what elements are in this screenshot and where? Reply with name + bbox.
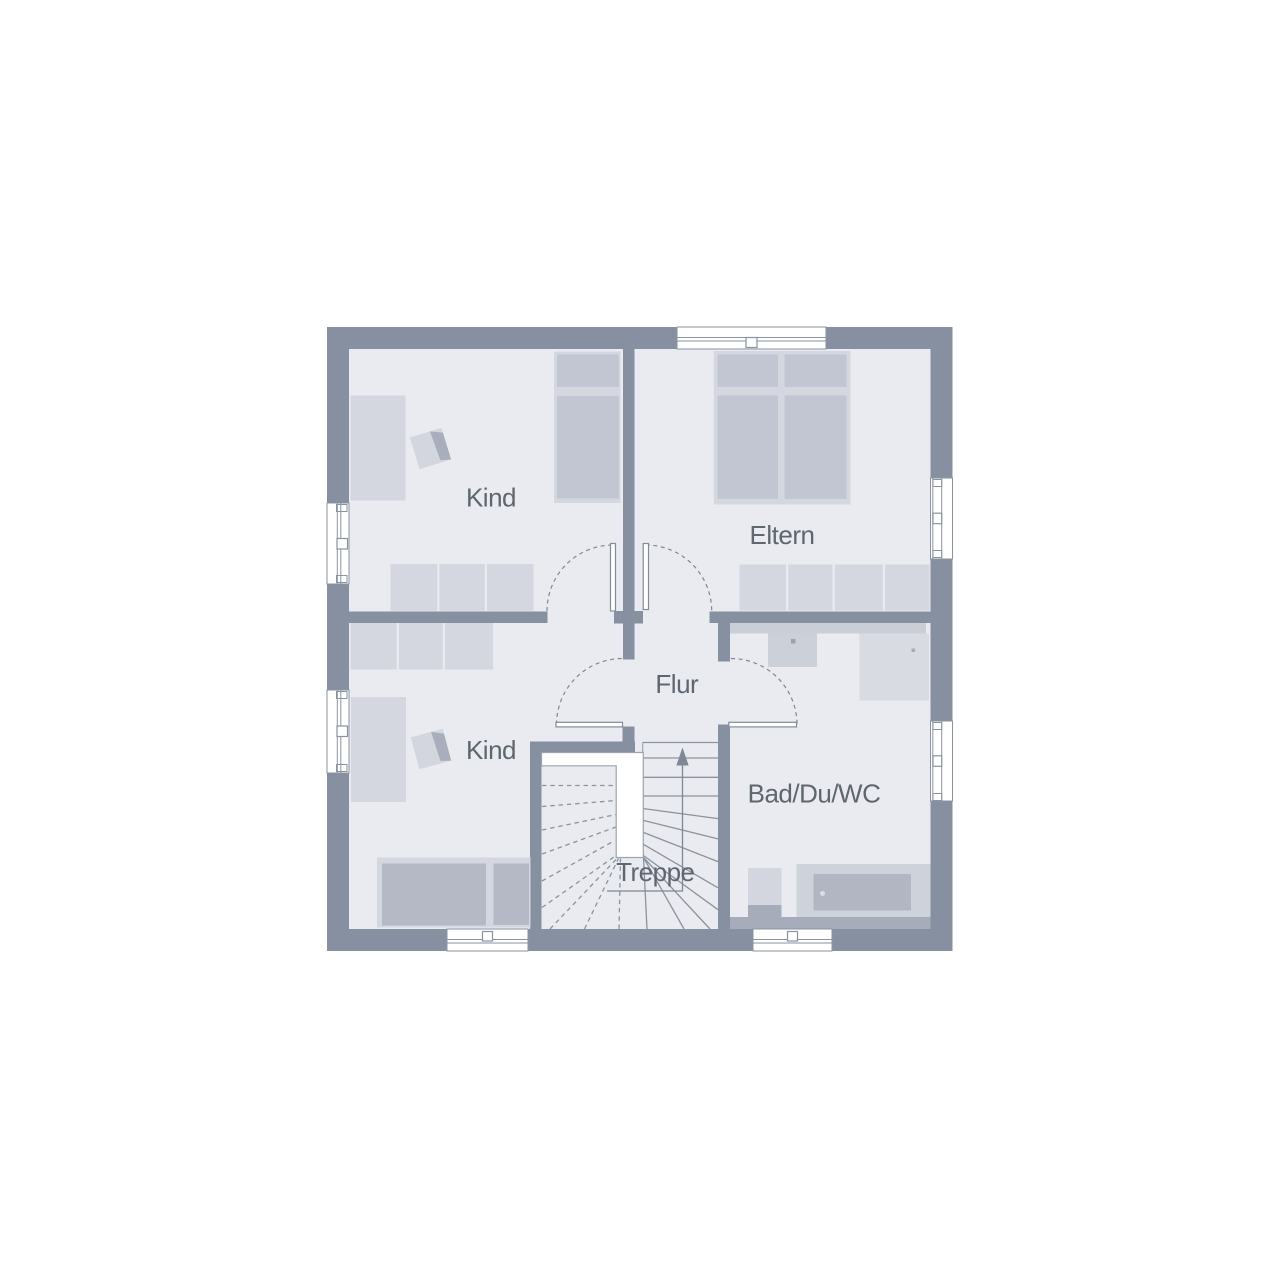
svg-text:Bad/Du/WC: Bad/Du/WC — [748, 779, 881, 809]
svg-text:Kind: Kind — [466, 483, 516, 513]
svg-text:Flur: Flur — [655, 669, 699, 699]
svg-text:Kind: Kind — [466, 735, 516, 765]
svg-text:Treppe: Treppe — [616, 857, 694, 887]
svg-text:Eltern: Eltern — [750, 520, 815, 550]
